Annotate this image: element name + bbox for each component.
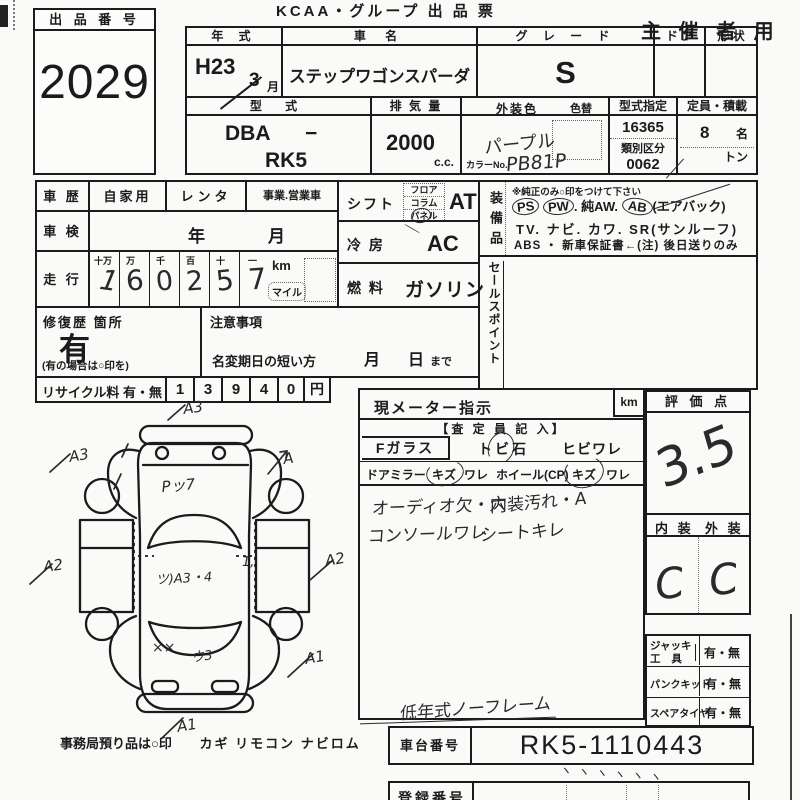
- mirror-label: ドアミラー: [366, 466, 426, 483]
- chassis-value: RK5-1110443: [472, 730, 752, 761]
- car-name: ステップワゴンスパーダ: [289, 63, 470, 87]
- wheel-label: ホイール(CP): [496, 466, 569, 483]
- shaken-label: 車 検: [35, 210, 90, 252]
- history-rental: レンタ: [165, 180, 247, 212]
- divider: [566, 785, 567, 800]
- fglass-label: Fガラス: [362, 436, 450, 460]
- rename-month: 月: [364, 346, 380, 370]
- equipment-line3: ABS ・ 新車保証書←(注) 後日送りのみ: [514, 237, 739, 253]
- jack-label-line2: 工 具: [650, 651, 686, 666]
- model-header: 型 式: [185, 96, 372, 116]
- repair-note: (有の場合は○印を): [42, 358, 129, 373]
- shift-label: シフト: [347, 194, 395, 214]
- year-value: H23: [195, 54, 235, 80]
- lot-number-value: 2029: [35, 55, 154, 110]
- mileage-digit: 0: [154, 265, 174, 298]
- name-header: 車 名: [281, 26, 478, 46]
- mileage-label: 走 行: [35, 250, 90, 308]
- interior-value: C: [652, 557, 688, 610]
- capacity-ton: トン: [724, 148, 748, 165]
- interior-exterior-header: 内 装 外 装: [645, 513, 751, 537]
- page-edge-line: [790, 614, 792, 800]
- diagram-note: A1: [303, 647, 327, 668]
- color-no-label: カラーNo.: [466, 158, 508, 171]
- jack-row: ジャッキ 工 具 有・無: [647, 636, 749, 667]
- class-no-value: 0062: [610, 156, 676, 173]
- diagram-hood-note: Pッ7: [161, 475, 196, 496]
- rear-fender-right: [249, 616, 279, 689]
- scan-artifact: [0, 5, 8, 27]
- headlight-left: [156, 447, 168, 459]
- scan-artifact: [13, 0, 15, 30]
- caution-label: 注意事項: [210, 312, 262, 331]
- door-panel-left: [80, 520, 133, 612]
- capacity-cell: 8 名 トン: [676, 114, 758, 175]
- chassis-label: 車台番号: [390, 728, 472, 763]
- displacement-cell: 2000 c.c.: [370, 114, 462, 175]
- rename-label: 名変期日の短い方: [212, 351, 316, 370]
- history-label: 車 歴: [35, 180, 90, 212]
- tools-panel: ジャッキ 工 具 有・無 パンクキット 有・無 スペアタイヤ 有・無: [645, 634, 751, 727]
- ie-divider: [698, 537, 699, 613]
- rating-score: 3.5: [650, 413, 743, 502]
- mileage-grid: [179, 252, 180, 308]
- diagram-rear-mark2: ウ3: [190, 648, 213, 666]
- capacity-unit: 名: [736, 125, 748, 142]
- door-cell: [653, 44, 706, 98]
- meter-panel: 現メーター指示 km 【査 定 員 記 入】 Fガラス トビ石 ヒビワレ ドアミ…: [358, 388, 645, 720]
- registration-label: 登録番号: [398, 788, 466, 800]
- rename-made: まで: [430, 353, 452, 369]
- meter-unit: km: [613, 390, 643, 417]
- caution-cell: 注意事項 名変期日の短い方 月 日 まで: [200, 306, 480, 378]
- grade-cell: S: [476, 44, 655, 98]
- shaken-cell: 年 月: [88, 210, 339, 252]
- equip-pw: PW: [542, 197, 574, 216]
- ac-label: 冷 房: [347, 235, 385, 255]
- puncture-kit-row: パンクキット 有・無: [647, 667, 749, 698]
- sales-point-label: セールスポイント: [482, 261, 504, 389]
- mileage-grid: [149, 252, 150, 308]
- headlight-right: [213, 447, 225, 459]
- rename-day: 日: [408, 346, 424, 370]
- exterior-value: C: [706, 553, 742, 606]
- displacement-value: 2000: [386, 130, 435, 156]
- diagram-note: A: [281, 449, 295, 468]
- diagram-rear-mark: ××: [152, 640, 175, 656]
- spare-tire-row: スペアタイヤ 有・無: [647, 698, 749, 725]
- divider: [699, 636, 700, 665]
- month-unit: 月: [267, 78, 279, 95]
- month-value: 3: [249, 70, 260, 92]
- divider: [699, 698, 700, 725]
- wheel-front-right: [269, 479, 303, 513]
- auction-sheet: 出 品 番 号 2029 KCAA・グループ 出 品 票 主 催 者 用 年 式…: [0, 0, 800, 800]
- windshield: [148, 515, 241, 548]
- divider: [360, 418, 643, 420]
- model-value: RK5: [265, 149, 307, 173]
- shape-cell: [704, 44, 758, 98]
- model-cell: DBA − RK5: [185, 114, 372, 175]
- taillight-right: [212, 681, 238, 692]
- meter-title: 現メーター指示: [374, 397, 493, 418]
- equipment-box: 装備品 ※純正のみ○印をつけて下さい PS PW. 純AW. AB(エアバック)…: [478, 180, 758, 257]
- grade-value: S: [555, 55, 576, 90]
- class-label: 類別区分: [610, 138, 676, 156]
- year-header: 年 式: [185, 26, 283, 46]
- shift-value: AT: [449, 189, 477, 215]
- jack-value: 有・無: [695, 644, 740, 661]
- fuel-value: ガソリン: [405, 275, 485, 302]
- history-business: 事業.営業車: [245, 180, 339, 212]
- rear-fender-left: [110, 616, 140, 689]
- fuel-row: 燃 料 ガソリン: [337, 262, 480, 308]
- mileage-empty-box: [304, 258, 336, 302]
- mileage-cell: 十万 万 千 百 十 一 1 6 0 2 5 7 km マイル: [88, 250, 339, 308]
- mirror-opt2: ワレ: [464, 466, 488, 483]
- office-label: 事務局預り品は○印: [60, 736, 172, 751]
- ac-value: AC: [427, 231, 459, 257]
- capacity-value: 8: [700, 123, 709, 143]
- equipment-label: 装備品: [480, 182, 506, 255]
- repair-cell: 修復歴 箇所 有 (有の場合は○印を): [35, 306, 202, 378]
- front-bumper: [140, 426, 252, 444]
- shift-opt-floor: フロア: [404, 184, 444, 197]
- mileage-mile: マイル: [268, 282, 306, 301]
- type-cert-value: 16365: [610, 116, 676, 136]
- inspector-note-4: シートキレ: [480, 515, 566, 546]
- car-damage-diagram: A3 A3 A A2 A2 A1 A1 Pッ7 ツ)A3・4 ×× ウ3 1,: [22, 396, 367, 741]
- sheet-title: KCAA・グループ 出 品 票: [276, 0, 496, 21]
- equip-ab-note: (エアバック): [652, 199, 725, 214]
- office-items: カギ リモコン ナビロム: [199, 736, 360, 751]
- rating-header: 評 価 点: [645, 390, 751, 413]
- equip-aw: . 純AW.: [574, 199, 618, 214]
- spare-tire-value: 有・無: [705, 704, 741, 721]
- lot-number-label: 出 品 番 号: [35, 10, 154, 31]
- mileage-grid: [209, 252, 210, 308]
- mark-stroke: [50, 454, 70, 472]
- shape-header: 形 状: [704, 26, 758, 46]
- inspector-note-3: コンソールワレ: [367, 518, 488, 547]
- history-private: 自家用: [88, 180, 167, 212]
- ac-row: 冷 房 AC: [337, 220, 480, 264]
- front-fender-right: [250, 450, 281, 518]
- diagram-roof-note: ツ)A3・4: [155, 570, 212, 588]
- diagram-door-mark: 1,: [242, 555, 254, 570]
- chassis-box: 車台番号 RK5-1110443: [388, 726, 754, 765]
- model-prefix: DBA: [225, 122, 271, 146]
- model-dash: −: [305, 122, 317, 146]
- registration-box: 登録番号: [388, 781, 750, 800]
- rating-score-box: 3.5: [645, 411, 751, 515]
- capacity-header: 定員・積載: [676, 96, 758, 116]
- type-cert-header: 型式指定: [608, 96, 678, 116]
- grade-header: グ レ ー ド: [476, 26, 655, 46]
- door-header: ド ア: [653, 26, 706, 46]
- taillight-left: [152, 681, 178, 692]
- divider: [658, 785, 659, 800]
- diagram-note: A2: [323, 549, 347, 570]
- diagram-note: A3: [181, 397, 204, 418]
- displacement-unit: c.c.: [434, 155, 454, 169]
- mileage-grid: [119, 252, 120, 308]
- fglass-row: Fガラス トビ石 ヒビワレ: [360, 436, 643, 462]
- puncture-kit-value: 有・無: [705, 675, 741, 692]
- fuel-label: 燃 料: [347, 278, 385, 298]
- interior-exterior-values: C C: [645, 535, 751, 615]
- lot-number-box: 出 品 番 号 2029: [33, 8, 156, 175]
- mileage-digit: 5: [214, 263, 235, 298]
- door-panel-right: [256, 520, 309, 612]
- mirror-hand-circle: [424, 457, 466, 489]
- mileage-km: km: [272, 258, 291, 273]
- equipment-line1: PS PW. 純AW. AB(エアバック): [512, 196, 726, 215]
- divider: [626, 785, 627, 800]
- mileage-digit: 2: [185, 265, 204, 297]
- color-header: 外装色 色替: [460, 96, 610, 116]
- office-line: 事務局預り品は○印 カギ リモコン ナビロム: [60, 733, 361, 752]
- inspector-note-1: オーディオ欠・穴: [371, 490, 507, 520]
- wheel-opt2: ワレ: [606, 466, 630, 483]
- color-cell: パープル カラーNo. PB81P: [460, 114, 610, 175]
- displacement-header: 排 気 量: [370, 96, 462, 116]
- shaken-year: 年: [188, 222, 205, 247]
- equipment-line2: TV. ナビ. カワ. SR(サンルーフ): [516, 219, 738, 238]
- mirror-wheel-row: ドアミラー キズ ワレ ホイール(CP) キズ ワレ: [360, 462, 643, 486]
- divider: [699, 667, 700, 696]
- divider: [472, 783, 474, 800]
- spare-tire-label: スペアタイヤ: [650, 705, 709, 720]
- diagram-note: A2: [41, 555, 64, 576]
- shift-row: シフト フロア コラム パネル AT: [337, 180, 480, 222]
- shaken-month: 月: [268, 222, 285, 247]
- year-cell: H23 3 月: [185, 44, 283, 98]
- equip-ps: PS: [511, 197, 540, 217]
- mileage-digit: 6: [125, 263, 145, 297]
- sales-point-box: セールスポイント: [478, 255, 758, 390]
- diagram-note: A3: [67, 445, 91, 466]
- mileage-grid: [239, 252, 240, 308]
- name-cell: ステップワゴンスパーダ: [281, 44, 478, 98]
- color-no-value: PB81P: [505, 150, 567, 176]
- puncture-kit-label: パンクキット: [650, 676, 711, 691]
- equip-ab: AB: [621, 196, 654, 217]
- mileage-digit: 7: [247, 261, 268, 296]
- type-cert-cell: 16365 類別区分 0062: [608, 114, 678, 175]
